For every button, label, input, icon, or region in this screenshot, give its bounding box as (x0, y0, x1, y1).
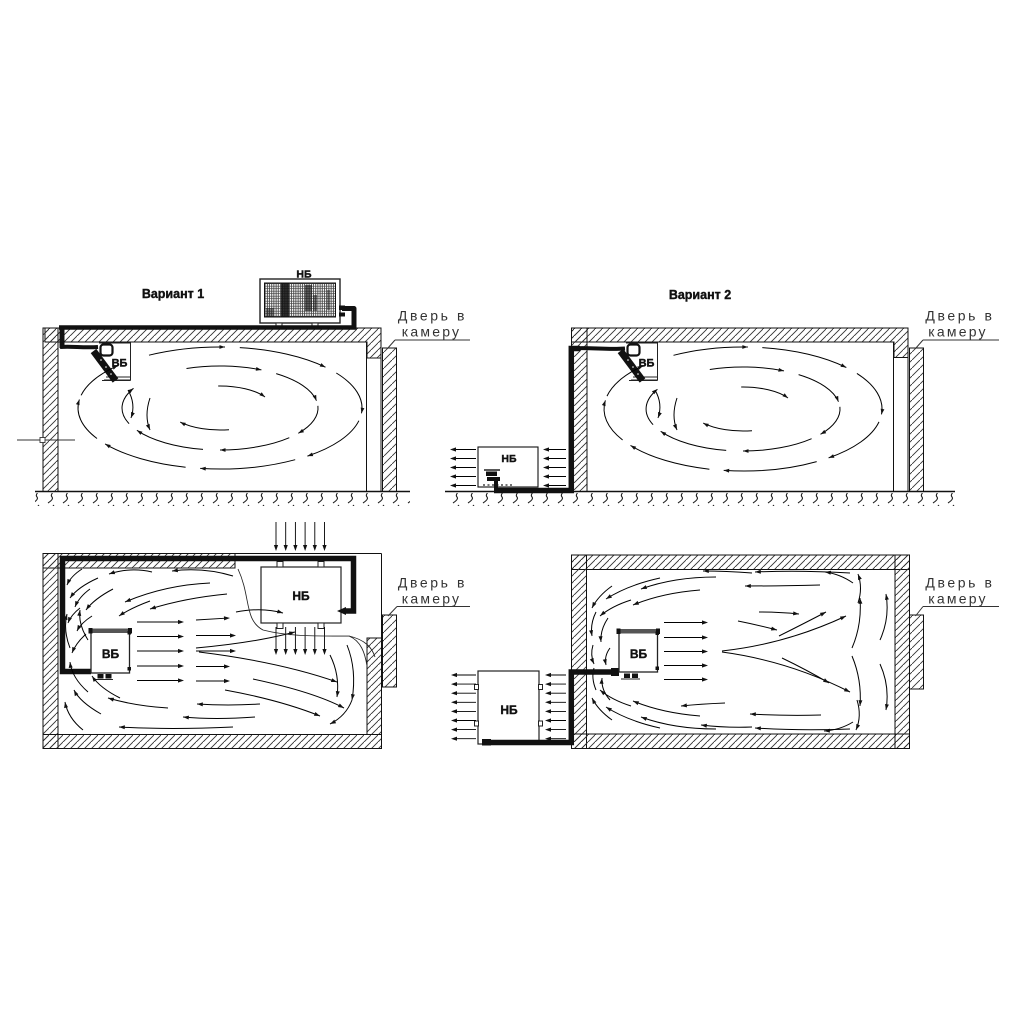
svg-text:ВБ: ВБ (630, 647, 648, 661)
svg-text:НБ: НБ (500, 703, 518, 717)
svg-text:Вариант 2: Вариант 2 (669, 288, 731, 302)
svg-text:камеру: камеру (402, 324, 461, 340)
svg-text:камеру: камеру (402, 591, 461, 607)
svg-text:Вариант 1: Вариант 1 (142, 287, 204, 301)
svg-text:НБ: НБ (501, 453, 517, 465)
svg-text:ВБ: ВБ (102, 647, 120, 661)
svg-text:Дверь в: Дверь в (925, 575, 994, 591)
svg-text:камеру: камеру (928, 591, 987, 607)
svg-text:НБ: НБ (296, 269, 312, 281)
svg-text:Дверь в: Дверь в (398, 308, 467, 324)
svg-text:Дверь в: Дверь в (925, 308, 994, 324)
svg-text:Дверь в: Дверь в (398, 575, 467, 591)
svg-text:НБ: НБ (292, 589, 310, 603)
svg-text:камеру: камеру (928, 324, 987, 340)
